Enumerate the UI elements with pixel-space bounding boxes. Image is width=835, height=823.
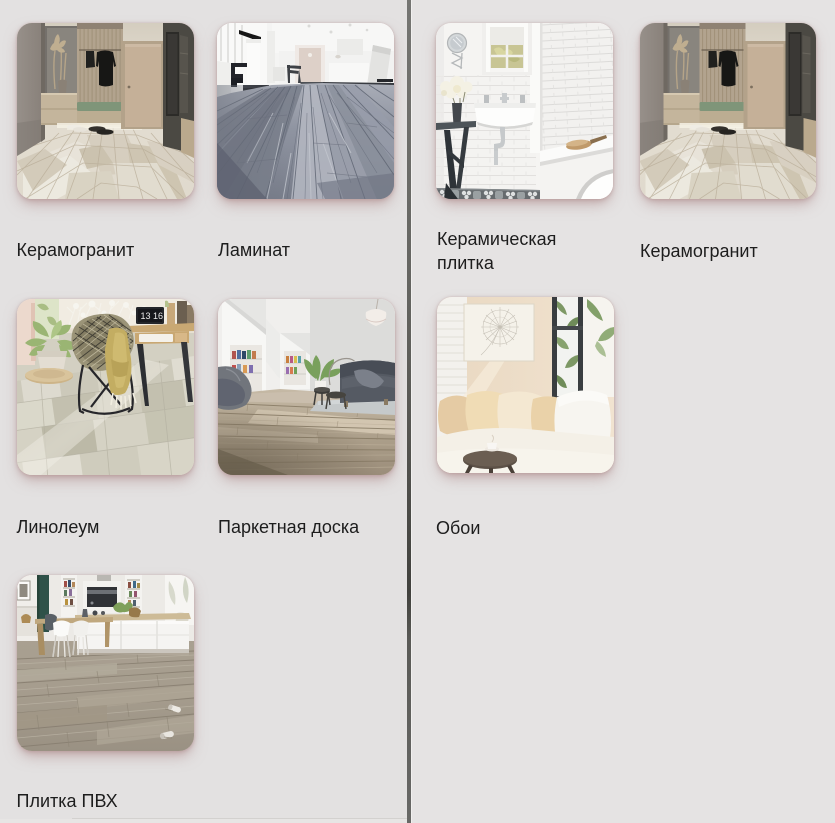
svg-text:13 16: 13 16 bbox=[141, 311, 164, 321]
